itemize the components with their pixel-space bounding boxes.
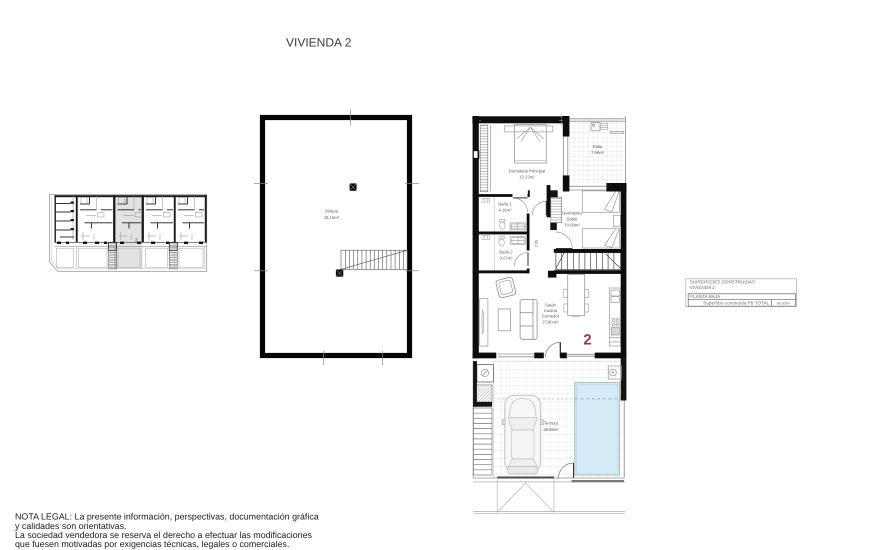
svg-text:27.80 m²: 27.80 m² <box>542 320 559 325</box>
svg-text:Salón: Salón <box>545 303 556 308</box>
svg-text:SUPERFICIES CONSTRUIDAS: SUPERFICIES CONSTRUIDAS <box>690 280 755 285</box>
svg-text:3.07m²: 3.07m² <box>499 256 513 261</box>
svg-text:Patio: Patio <box>593 144 603 149</box>
svg-text:Dormitorio Principal: Dormitorio Principal <box>509 168 546 173</box>
svg-text:2: 2 <box>583 333 591 349</box>
svg-text:Comedor: Comedor <box>542 314 560 319</box>
svg-text:que fuesen motivadas por exige: que fuesen motivadas por exigencias técn… <box>15 539 289 549</box>
svg-text:Cocina: Cocina <box>544 308 558 313</box>
svg-text:VIVIENDA 2: VIVIENDA 2 <box>286 36 352 50</box>
svg-text:2.05: 2.05 <box>535 240 539 247</box>
svg-text:12.22m²: 12.22m² <box>519 175 535 180</box>
svg-text:Doble: Doble <box>567 217 579 222</box>
svg-text:Dormitorio: Dormitorio <box>562 211 582 216</box>
svg-text:7.66m²: 7.66m² <box>591 150 605 155</box>
svg-text:Terraza: Terraza <box>544 421 559 426</box>
svg-text:78.15m²: 78.15m² <box>324 215 340 220</box>
svg-text:Sótano: Sótano <box>325 209 339 214</box>
svg-text:2: 2 <box>135 238 138 243</box>
svg-text:VIVIENDA 2: VIVIENDA 2 <box>690 285 715 290</box>
svg-text:4.16m²: 4.16m² <box>498 208 512 213</box>
svg-text:86.93m²: 86.93m² <box>777 301 791 305</box>
svg-text:Superficie construida PB TOTAL: Superficie construida PB TOTAL <box>703 301 769 306</box>
svg-text:Baño 1: Baño 1 <box>498 202 512 207</box>
svg-text:Baño 2: Baño 2 <box>499 250 513 255</box>
svg-text:10.08m²: 10.08m² <box>564 223 580 228</box>
svg-text:PLANTA BAJA: PLANTA BAJA <box>690 294 721 299</box>
svg-text:38.88m²: 38.88m² <box>543 427 559 432</box>
